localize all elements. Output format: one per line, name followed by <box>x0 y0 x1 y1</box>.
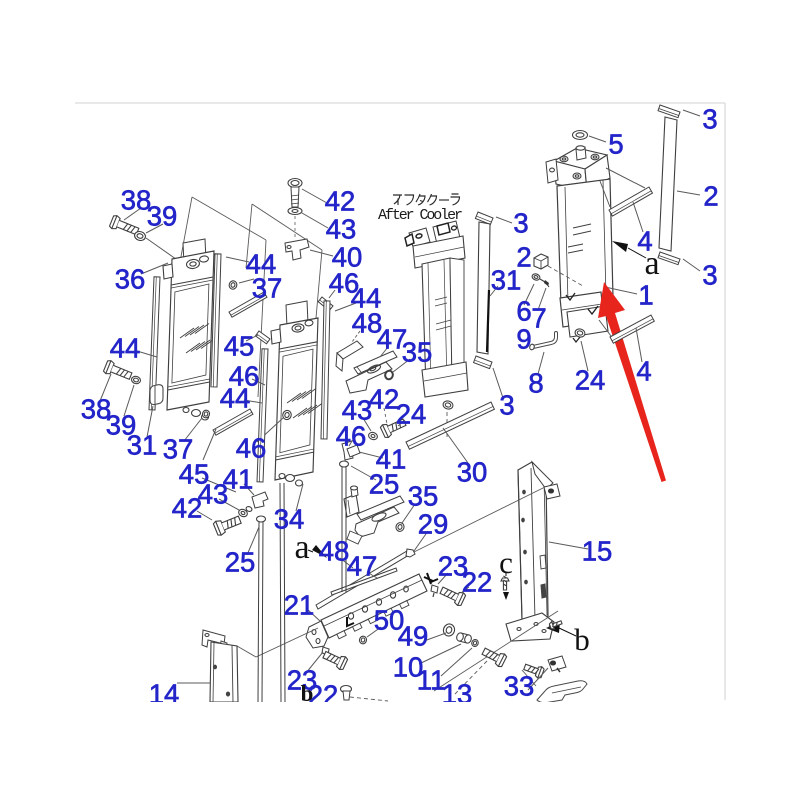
svg-text:a: a <box>644 245 659 282</box>
svg-text:25: 25 <box>369 469 400 500</box>
svg-text:15: 15 <box>582 536 613 567</box>
svg-text:3: 3 <box>513 208 528 239</box>
svg-text:43: 43 <box>326 214 357 245</box>
svg-text:1: 1 <box>638 280 653 311</box>
svg-text:35: 35 <box>402 337 433 368</box>
svg-text:a: a <box>294 529 309 566</box>
svg-text:7: 7 <box>531 303 546 334</box>
svg-text:c: c <box>499 545 513 580</box>
svg-text:After Cooler: After Cooler <box>378 207 463 224</box>
svg-text:29: 29 <box>418 509 449 540</box>
svg-text:22: 22 <box>462 567 493 598</box>
svg-text:37: 37 <box>252 273 283 304</box>
svg-text:44: 44 <box>110 333 141 364</box>
svg-text:42: 42 <box>325 186 356 217</box>
svg-text:49: 49 <box>398 621 429 652</box>
svg-text:24: 24 <box>396 399 427 430</box>
svg-text:25: 25 <box>225 547 256 578</box>
svg-text:3: 3 <box>702 104 717 135</box>
svg-text:46: 46 <box>236 433 267 464</box>
svg-text:2: 2 <box>703 181 718 212</box>
svg-text:35: 35 <box>408 481 439 512</box>
svg-text:9: 9 <box>516 324 531 355</box>
svg-text:21: 21 <box>284 590 315 621</box>
svg-text:4: 4 <box>636 356 651 387</box>
svg-text:48: 48 <box>319 536 350 567</box>
svg-text:5: 5 <box>608 129 623 160</box>
svg-text:45: 45 <box>224 331 255 362</box>
svg-text:44: 44 <box>220 383 251 414</box>
svg-text:30: 30 <box>457 457 488 488</box>
svg-text:47: 47 <box>347 551 378 582</box>
svg-text:b: b <box>574 622 590 657</box>
svg-text:36: 36 <box>115 264 146 295</box>
svg-text:3: 3 <box>702 260 717 291</box>
svg-text:31: 31 <box>127 430 158 461</box>
svg-text:39: 39 <box>147 201 178 232</box>
svg-text:46: 46 <box>336 421 367 452</box>
svg-text:31: 31 <box>491 265 522 296</box>
svg-text:24: 24 <box>575 365 606 396</box>
svg-text:33: 33 <box>504 671 535 702</box>
svg-text:42: 42 <box>369 384 400 415</box>
svg-text:42: 42 <box>172 493 203 524</box>
svg-text:6: 6 <box>516 296 531 327</box>
svg-text:3: 3 <box>499 390 514 421</box>
svg-text:8: 8 <box>528 368 543 399</box>
